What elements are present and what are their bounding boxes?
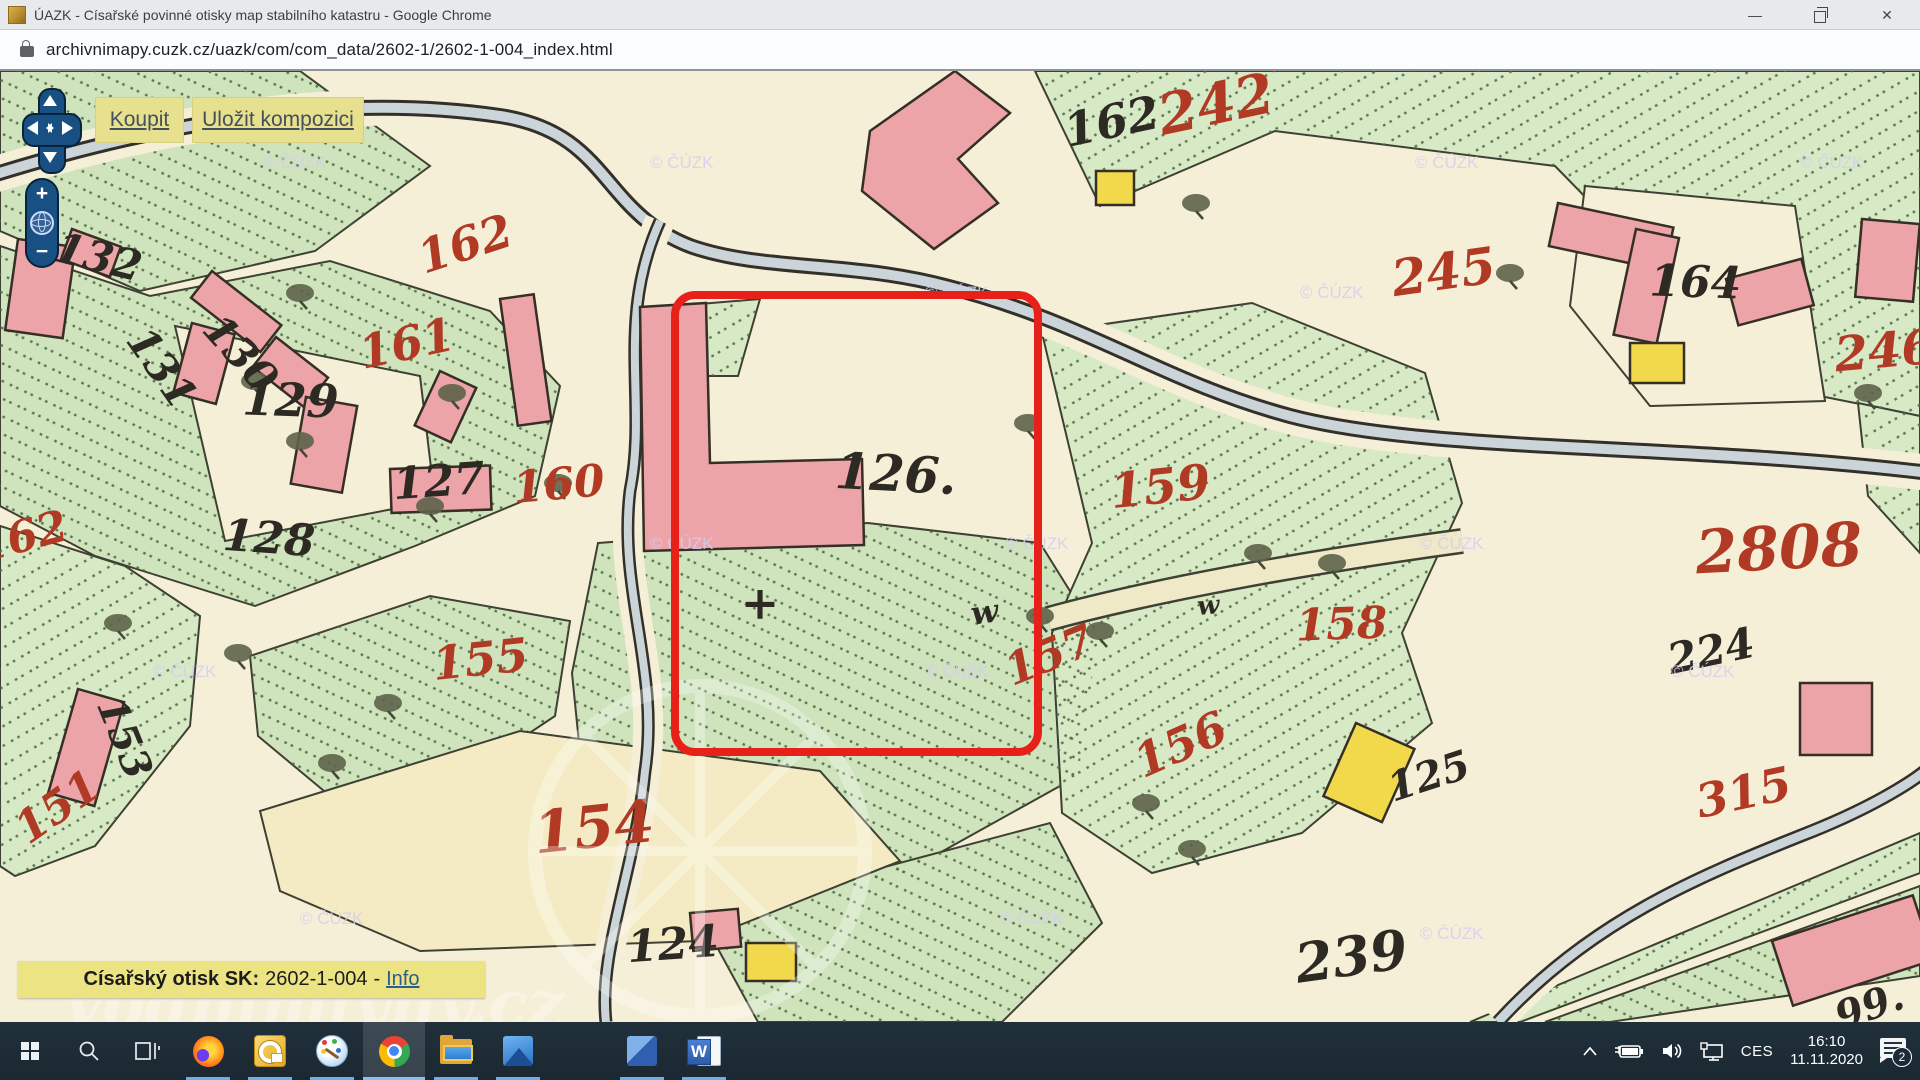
pan-left-arrow-icon[interactable] <box>27 121 38 135</box>
windows-logo-icon <box>21 1042 39 1060</box>
taskbar-app-paint[interactable] <box>301 1022 363 1080</box>
parcel-label: 2808 <box>1693 510 1864 589</box>
parcel-label: 159 <box>1108 454 1214 520</box>
cuzk-watermark: © ČÚZK <box>650 153 714 172</box>
lock-icon[interactable] <box>20 46 34 57</box>
pan-control[interactable] <box>22 88 78 170</box>
taskbar-app-media[interactable] <box>611 1022 673 1080</box>
battery-icon[interactable] <box>1614 1042 1644 1060</box>
cuzk-watermark: © ČÚZK <box>1300 283 1364 302</box>
cuzk-watermark: © ČÚZK <box>1000 909 1064 928</box>
zoom-in-button[interactable]: + <box>36 185 48 203</box>
minimize-button[interactable]: — <box>1722 0 1788 30</box>
cuzk-watermark: © ČÚZK <box>1420 924 1484 943</box>
globe-icon[interactable] <box>30 211 54 235</box>
parcel-label: 164 <box>1649 255 1743 309</box>
pan-up-arrow-icon[interactable] <box>43 95 57 106</box>
cuzk-watermark: © ČÚZK <box>925 662 989 681</box>
cuzk-watermark: © ČÚZK <box>263 153 327 172</box>
sheet-info-bar: Císařský otisk SK: 2602-1-004 - Info <box>18 961 485 998</box>
cuzk-watermark: © ČÚZK <box>1671 662 1735 681</box>
info-link[interactable]: Info <box>386 968 419 991</box>
separator: - <box>373 968 380 991</box>
taskbar-spacer <box>549 1022 611 1080</box>
cuzk-watermark: © ČÚZK <box>1420 534 1484 553</box>
parcel-label: 127 <box>391 453 487 510</box>
close-button[interactable]: ✕ <box>1854 0 1920 30</box>
parcel-label: 158 <box>1295 597 1389 651</box>
explorer-icon <box>440 1039 472 1064</box>
restore-icon <box>1814 11 1826 23</box>
window-titlebar: ÚAZK - Císařské povinné otisky map stabi… <box>0 0 1920 30</box>
taskbar-app-explorer[interactable] <box>425 1022 487 1080</box>
search-icon <box>77 1039 101 1063</box>
task-view-icon <box>135 1040 161 1062</box>
parcel-label: 126. <box>834 441 959 506</box>
zoom-out-button[interactable]: − <box>36 243 48 261</box>
volume-icon[interactable] <box>1661 1042 1683 1060</box>
parcel-label: 124 <box>625 916 720 973</box>
parcel-label: 129 <box>242 371 340 428</box>
word-icon: W <box>687 1036 721 1066</box>
cuzk-watermark: © ČÚZK <box>1800 153 1864 172</box>
taskbar-app-firefox[interactable] <box>177 1022 239 1080</box>
cuzk-watermark: © ČÚZK <box>300 909 364 928</box>
notification-badge: 2 <box>1892 1047 1912 1067</box>
taskbar-app-photos[interactable] <box>487 1022 549 1080</box>
pan-down-arrow-icon[interactable] <box>43 152 57 163</box>
tray-time: 16:10 <box>1790 1033 1863 1051</box>
start-button[interactable] <box>0 1022 59 1080</box>
language-indicator[interactable]: CES <box>1741 1043 1773 1060</box>
buy-button[interactable]: Koupit <box>95 97 184 143</box>
parcel-label: w <box>1196 590 1223 622</box>
url-text[interactable]: archivnimapy.cuzk.cz/uazk/com/com_data/2… <box>46 40 613 60</box>
network-icon[interactable] <box>1700 1042 1724 1061</box>
cuzk-watermark: © ČÚZK <box>153 662 217 681</box>
restore-button[interactable] <box>1788 0 1854 30</box>
windows-taskbar: W CES 16:10 <box>0 1022 1920 1080</box>
system-tray: CES 16:10 11.11.2020 2 <box>1583 1022 1920 1080</box>
tray-date: 11.11.2020 <box>1790 1051 1863 1069</box>
chrome-icon <box>379 1036 410 1067</box>
task-view-button[interactable] <box>118 1022 177 1080</box>
parcel-label: 160 <box>511 455 607 514</box>
building-yellow <box>1096 171 1134 205</box>
paint-icon <box>316 1035 348 1067</box>
pan-center-icon <box>48 123 54 133</box>
parcel-label: 128 <box>221 510 316 567</box>
photos-icon <box>503 1036 533 1066</box>
cadastral-map: 162132131130129127128126.153124164224239… <box>0 71 1920 1022</box>
zoom-control[interactable]: + − <box>25 178 59 268</box>
notification-center-button[interactable]: 2 <box>1880 1038 1910 1064</box>
sheet-number: 2602-1-004 <box>265 968 367 991</box>
cuzk-watermark: © ČÚZK <box>1415 153 1479 172</box>
taskbar-app-outlook[interactable] <box>239 1022 301 1080</box>
media-icon <box>627 1036 657 1066</box>
cuzk-watermark: © ČÚZK <box>650 534 714 553</box>
browser-urlbar: archivnimapy.cuzk.cz/uazk/com/com_data/2… <box>0 30 1920 71</box>
desktop: ÚAZK - Císařské povinné otisky map stabi… <box>0 0 1920 1080</box>
search-button[interactable] <box>59 1022 118 1080</box>
map-viewport[interactable]: 162132131130129127128126.153124164224239… <box>0 71 1920 1022</box>
parcel-label: 246 <box>1831 319 1920 384</box>
parcel-label: 155 <box>430 627 531 691</box>
window-title: ÚAZK - Císařské povinné otisky map stabi… <box>34 7 492 23</box>
clock[interactable]: 16:10 11.11.2020 <box>1790 1033 1863 1069</box>
taskbar-app-word[interactable]: W <box>673 1022 735 1080</box>
pan-right-arrow-icon[interactable] <box>62 121 73 135</box>
firefox-icon <box>193 1036 224 1067</box>
save-composition-button[interactable]: Uložit kompozici <box>192 97 364 143</box>
parcel-label: + <box>741 576 780 630</box>
tray-expand-icon[interactable] <box>1583 1047 1597 1056</box>
taskbar-app-chrome[interactable] <box>363 1022 425 1080</box>
site-favicon <box>8 6 26 24</box>
sheet-label: Císařský otisk SK: <box>84 968 260 991</box>
outlook-icon <box>254 1035 286 1067</box>
